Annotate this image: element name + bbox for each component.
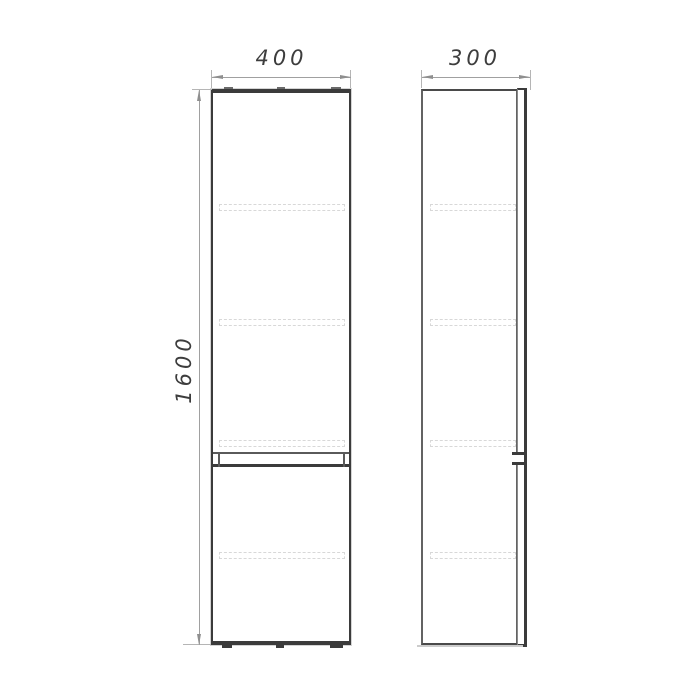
side-view-base-shadow xyxy=(417,645,523,647)
shelf-hidden-line xyxy=(219,319,345,326)
extension-line xyxy=(211,70,212,88)
dim-arrow-down-icon xyxy=(197,634,201,645)
extension-line xyxy=(421,70,422,88)
dim-arrow-left-icon xyxy=(212,75,223,79)
drawing-canvas: 400 300 1600 xyxy=(0,0,700,700)
door-gap-side-tick xyxy=(343,452,345,467)
door-gap-side-tick xyxy=(218,452,220,467)
depth-dimension-label: 300 xyxy=(420,46,530,70)
top-edge-mark xyxy=(277,87,285,89)
shelf-hidden-line xyxy=(430,319,516,326)
dimension-line xyxy=(422,77,530,78)
shelf-hidden-line xyxy=(219,552,345,559)
extension-line xyxy=(192,89,212,90)
shelf-hidden-line xyxy=(430,552,516,559)
side-view-body xyxy=(421,89,518,645)
dimension-line xyxy=(212,77,351,78)
shelf-hidden-line xyxy=(430,204,516,211)
top-edge-mark xyxy=(331,87,341,89)
shelf-hidden-line xyxy=(430,440,516,447)
front-view-outline xyxy=(211,89,351,645)
dimension-line xyxy=(199,90,200,645)
extension-line xyxy=(350,70,351,88)
foot-mark xyxy=(330,645,343,648)
upper-door-bottom-edge xyxy=(213,452,349,454)
lower-door-top-edge xyxy=(213,464,349,467)
height-dimension-label: 1600 xyxy=(172,314,196,424)
dim-arrow-left-icon xyxy=(422,75,433,79)
door-panel-gap xyxy=(511,455,522,462)
door-panel-gap-cap xyxy=(512,462,527,465)
top-edge-mark xyxy=(224,87,233,89)
shelf-hidden-line xyxy=(219,440,345,447)
dim-arrow-right-icon xyxy=(519,75,530,79)
width-dimension-label: 400 xyxy=(212,46,351,70)
foot-mark xyxy=(222,645,232,648)
foot-mark xyxy=(276,645,284,648)
door-front-panel-profile xyxy=(517,88,527,647)
extension-line xyxy=(530,70,531,90)
dim-arrow-up-icon xyxy=(197,90,201,101)
dim-arrow-right-icon xyxy=(340,75,351,79)
shelf-hidden-line xyxy=(219,204,345,211)
